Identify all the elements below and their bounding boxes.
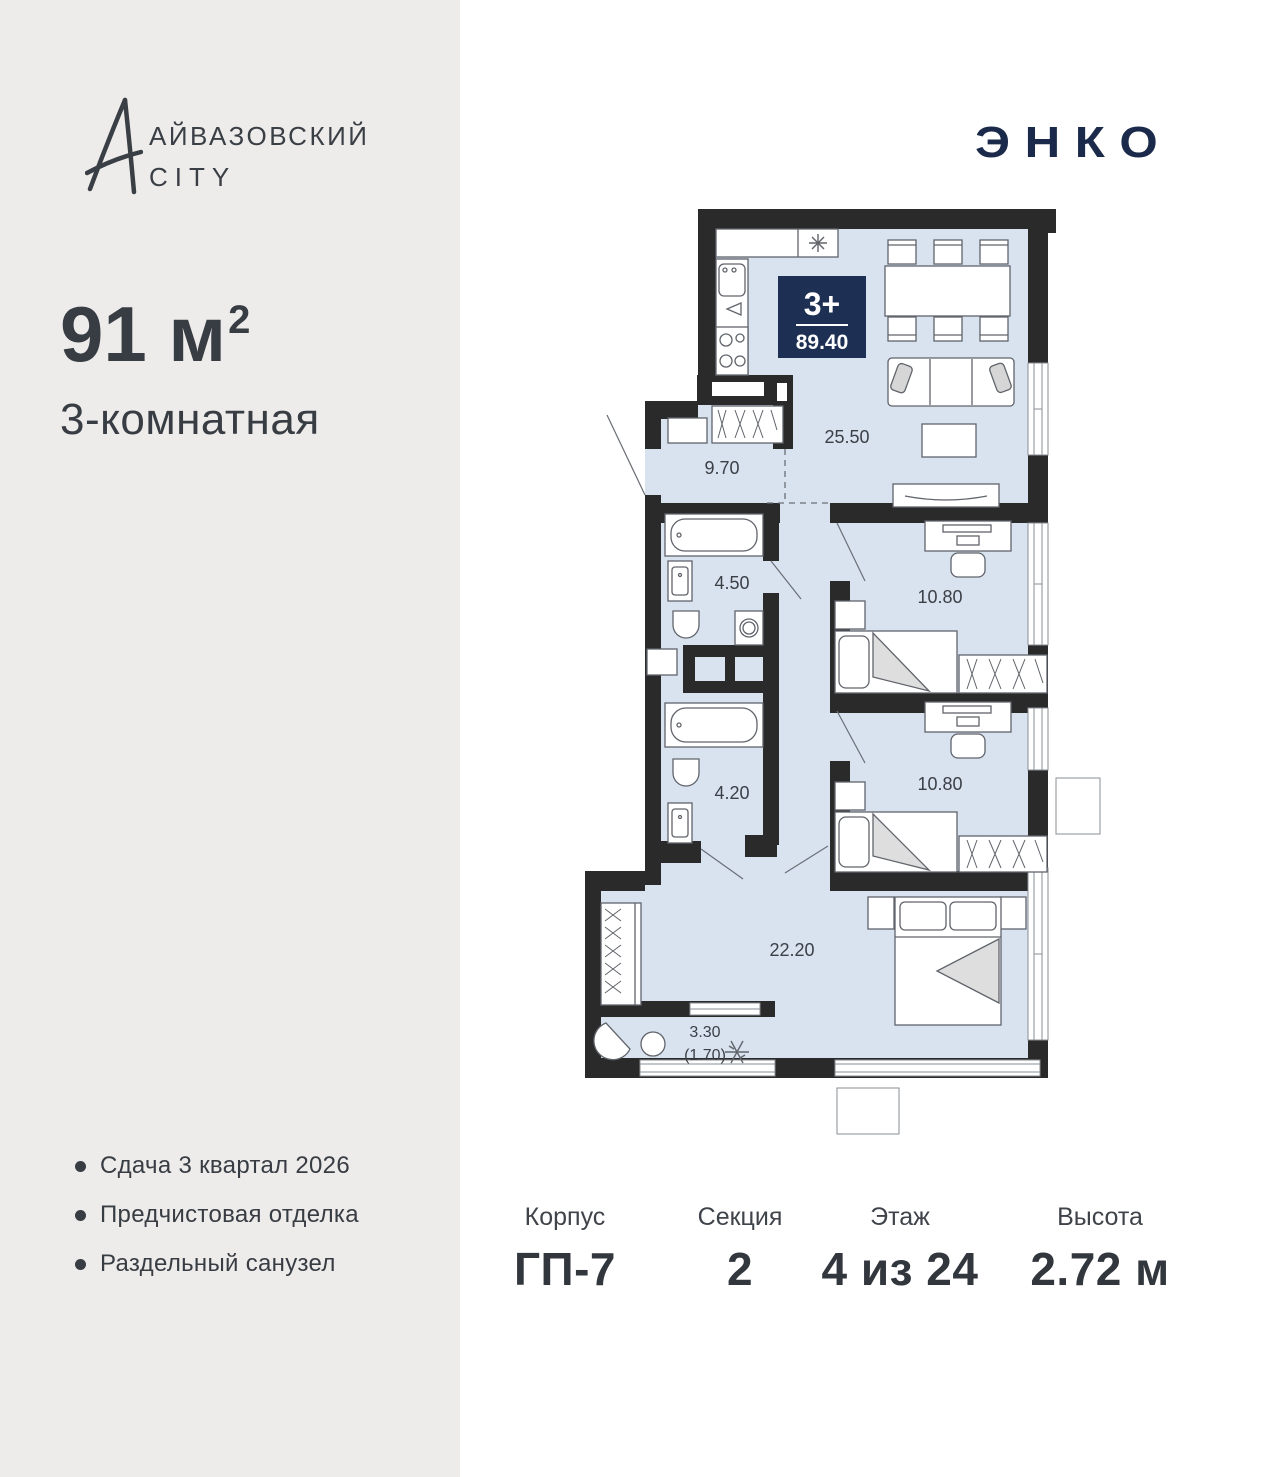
sofa: [888, 358, 1014, 406]
area-exponent: 2: [228, 298, 250, 342]
bullet-dot-icon: [75, 1210, 86, 1221]
detail-label: Корпус: [490, 1203, 640, 1232]
brand-subtitle: CITY: [149, 162, 369, 193]
detail-section: Секция 2: [665, 1203, 815, 1296]
bullet-dot-icon: [75, 1161, 86, 1172]
room-label-bath1: 4.50: [714, 573, 749, 593]
coffee-table: [922, 424, 976, 457]
corridor-wardrobe: [601, 903, 641, 1005]
detail-value: ГП-7: [490, 1242, 640, 1296]
feature-item: Сдача 3 квартал 2026: [75, 1152, 359, 1180]
badge-area: 89.40: [796, 331, 849, 354]
detail-value: 2: [665, 1242, 815, 1296]
detail-value: 4 из 24: [820, 1242, 980, 1296]
room-label-loggia: 3.30: [689, 1024, 720, 1041]
room-label-hallway: 9.70: [704, 458, 739, 478]
tv-stand: [893, 484, 999, 507]
detail-height: Высота 2.72 м: [1020, 1203, 1180, 1296]
room-label-bath2: 4.20: [714, 783, 749, 803]
bullet-dot-icon: [75, 1259, 86, 1270]
detail-label: Высота: [1020, 1203, 1180, 1232]
features-list: Сдача 3 квартал 2026 Предчистовая отделк…: [75, 1152, 359, 1299]
developer-logo: ЭНКО: [975, 118, 1266, 178]
brand-logo: АЙВАЗОВСКИЙ CITY: [85, 95, 415, 215]
detail-floor: Этаж 4 из 24: [820, 1203, 980, 1296]
area-unit: м: [147, 290, 226, 378]
aivazovsky-logo-icon: [85, 97, 143, 197]
room-label-loggia-reduced: (1.70): [684, 1047, 726, 1064]
apartment-type-label: 3-комнатная: [60, 395, 320, 445]
feature-label: Сдача 3 квартал 2026: [100, 1152, 350, 1180]
room-label-bedroom1: 10.80: [917, 587, 962, 607]
toilet: [673, 759, 699, 786]
area-value: 91: [60, 290, 147, 378]
detail-building: Корпус ГП-7: [490, 1203, 640, 1296]
brand-title: АЙВАЗОВСКИЙ: [149, 121, 369, 152]
floor-plan-svg: 3+ 89.40 25.50 9.70 4.50 10.80 4.20 10.8…: [585, 203, 1105, 1138]
toilet: [673, 611, 699, 638]
feature-label: Предчистовая отделка: [100, 1201, 359, 1229]
area-title: 91 м2: [60, 295, 320, 373]
feature-item: Предчистовая отделка: [75, 1201, 359, 1229]
shelf-box: [647, 649, 677, 675]
feature-item: Раздельный санузел: [75, 1250, 359, 1278]
room-label-bedroom2: 10.80: [917, 774, 962, 794]
detail-label: Этаж: [820, 1203, 980, 1232]
headline: 91 м2 3-комнатная: [60, 295, 320, 445]
room-label-corridor: 22.20: [769, 940, 814, 960]
room-label-living: 25.50: [824, 427, 869, 447]
feature-label: Раздельный санузел: [100, 1250, 336, 1278]
badge-rooms: 3+: [804, 286, 840, 322]
dining-table: [885, 240, 1010, 341]
stove: [716, 327, 748, 375]
detail-value: 2.72 м: [1020, 1242, 1180, 1296]
detail-label: Секция: [665, 1203, 815, 1232]
apartment-badge: 3+ 89.40: [778, 276, 866, 358]
